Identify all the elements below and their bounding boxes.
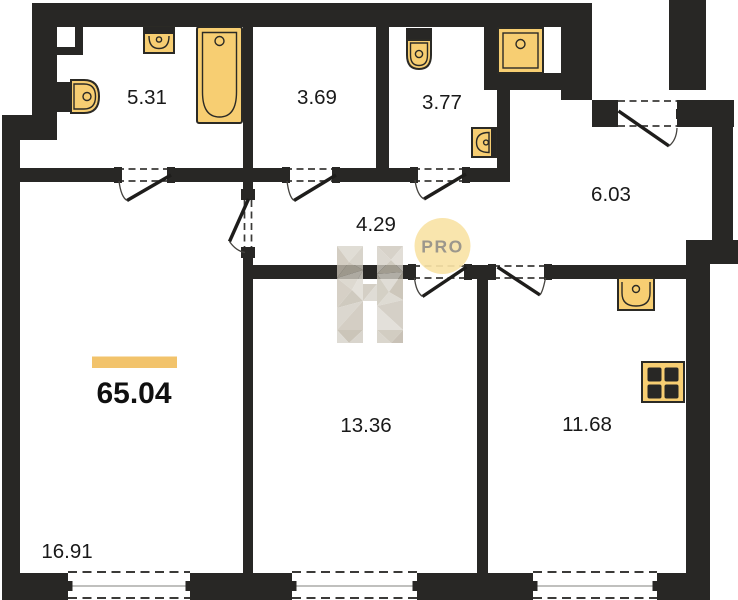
washing-machine-icon [498, 28, 543, 73]
kitchen-sink-icon [618, 278, 654, 310]
pro-badge-label: PRO [421, 237, 463, 257]
room-label-laundry: 3.77 [422, 91, 462, 114]
floor-plan-canvas: PRO 5.31 3.69 3.77 4.29 6.03 13.36 11.68… [0, 0, 738, 600]
room-labels: 5.31 3.69 3.77 4.29 6.03 13.36 11.68 16.… [41, 86, 631, 563]
room-label-entry-hall: 6.03 [591, 183, 631, 206]
window [288, 572, 422, 598]
living-room-door [230, 189, 256, 258]
toilet-icon [406, 28, 432, 69]
room-label-bathroom: 5.31 [127, 86, 167, 109]
laundry-door [410, 167, 470, 199]
toilet-icon [57, 80, 99, 113]
wc-door [282, 167, 340, 201]
entrance-door [618, 101, 684, 146]
room-label-living-room: 16.91 [41, 540, 92, 563]
kitchen-door [488, 264, 552, 295]
floor-plan: PRO 5.31 3.69 3.77 4.29 6.03 13.36 11.68… [0, 0, 738, 600]
hand-sink-icon [472, 128, 496, 157]
room-label-bedroom: 13.36 [340, 414, 391, 437]
room-label-hallway: 4.29 [356, 213, 396, 236]
accent-bar [92, 357, 177, 369]
total-area-value: 65.04 [96, 377, 171, 410]
window [64, 572, 195, 598]
window [529, 572, 662, 598]
wall-sink-icon [144, 27, 174, 53]
bathroom-door [114, 167, 175, 201]
pro-badge: PRO [415, 218, 471, 274]
room-label-kitchen: 11.68 [562, 413, 612, 436]
watermark-logo [337, 246, 403, 343]
stove-icon [642, 362, 684, 402]
bathtub-icon [197, 27, 242, 123]
room-label-wc: 3.69 [297, 86, 337, 109]
total-area: 65.04 [92, 357, 177, 411]
